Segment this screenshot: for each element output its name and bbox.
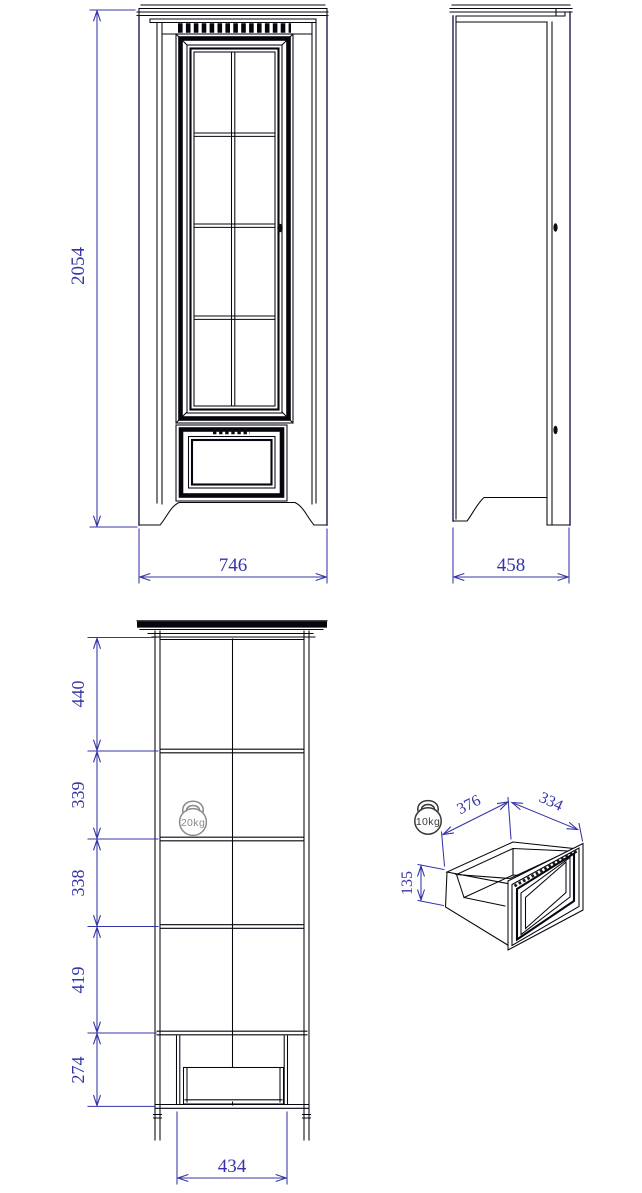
section-drawer-box [184,1068,284,1105]
shelf-load-label: 20kg [181,817,205,829]
side-cornice [450,5,572,22]
front-glass-door [176,34,293,423]
side-knob-lower-icon [553,426,557,434]
drawer-isometric-view: 10kg 376 334 135 [399,789,583,950]
drawer-depth-dimension: 376 [454,792,483,818]
internal-section-view: 20kg 440 339 338 419 274 434 [68,621,327,1184]
section-drawer-opening-dimension: 434 [218,1156,247,1177]
front-muntin-grid [194,52,275,406]
front-width-dimension: 746 [219,555,248,576]
front-elevation-view: 2054 746 [68,5,328,583]
front-plinth-arch [139,503,327,526]
shelf-load-kettlebell-icon: 20kg [180,801,207,835]
section-segment-338: 338 [68,870,88,897]
section-segment-274: 274 [68,1057,88,1084]
front-cornice [137,5,328,23]
section-segment-419: 419 [68,967,88,994]
side-depth-dimension: 458 [497,555,526,576]
drawer-height-dimension: 135 [399,871,416,895]
front-drawer [176,425,287,501]
front-door-knob-icon [277,224,282,233]
front-outer-sides [139,16,327,526]
drawing-svg: 2054 746 458 [0,0,642,1193]
front-height-dimension: 2054 [68,247,89,286]
side-knob-upper-icon [553,223,557,231]
side-dimensions: 458 [453,528,569,583]
technical-drawing-canvas: 2054 746 458 [0,0,642,1193]
drawer-load-kettlebell-icon: 10kg [415,801,441,835]
section-segment-339: 339 [68,782,88,809]
section-segment-440: 440 [68,681,88,708]
drawer-load-label: 10kg [416,816,440,828]
side-panel-lines [456,16,552,525]
side-elevation-view: 458 [450,5,572,583]
drawer-width-dimension: 334 [536,789,565,815]
section-dimensions: 440 339 338 419 274 434 [68,638,287,1185]
